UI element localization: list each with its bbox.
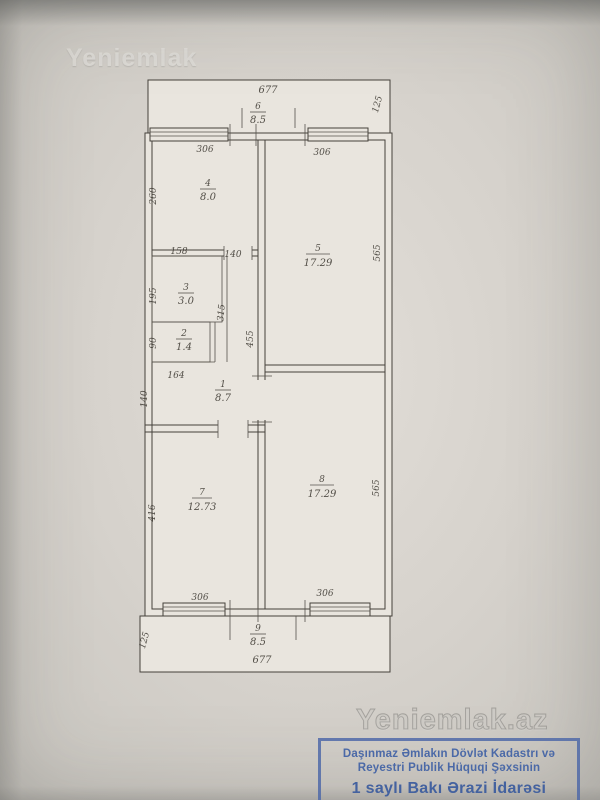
room-number-r3: 3 xyxy=(183,283,189,293)
dim-wall-left: 140 xyxy=(140,390,150,407)
dim-r8-width: 306 xyxy=(316,589,333,599)
dim-door-top: 140 xyxy=(224,250,241,260)
room-area-balcony-bottom: 8.5 xyxy=(250,637,266,648)
dim-r4-width: 306 xyxy=(196,145,213,155)
dim-r7-height: 416 xyxy=(148,504,158,522)
room-area-r8: 17.29 xyxy=(308,489,337,500)
dim-r3-width: 158 xyxy=(170,247,187,257)
watermark-top: Yeniemlak xyxy=(66,44,197,73)
photo-of-floorplan: Yeniemlak 677 xyxy=(0,0,600,800)
cadastre-stamp: Daşınmaz Əmlakın Dövlət Kadastrı və Reye… xyxy=(318,738,580,800)
room-area-r3: 3.0 xyxy=(178,296,195,307)
room-area-r1: 8.7 xyxy=(215,393,232,404)
dim-bottom-width: 677 xyxy=(252,655,272,666)
dim-r3-height: 195 xyxy=(149,287,159,304)
room-number-r2: 2 xyxy=(180,329,187,339)
room-number-balcony-bottom: 9 xyxy=(255,624,261,634)
stamp-line1: Daşınmaz Əmlakın Dövlət Kadastrı və xyxy=(325,747,573,761)
dim-r2-width: 164 xyxy=(167,371,184,381)
room-number-r7: 7 xyxy=(199,488,205,498)
room-number-r1: 1 xyxy=(220,380,226,390)
dim-corridor-right: 455 xyxy=(246,330,256,348)
window-top-right xyxy=(308,128,368,141)
window-top-left xyxy=(150,128,228,141)
dim-r5-height: 565 xyxy=(373,244,383,261)
room-number-balcony-top: 6 xyxy=(255,102,261,112)
watermark-bottom: Yeniemlak.az xyxy=(356,704,549,737)
room-area-r5: 17.29 xyxy=(304,258,333,269)
floorplan-drawing: 677 6 8.5 125 306 260 4 8.0 306 565 5 17… xyxy=(0,0,600,800)
window-bottom-left xyxy=(163,603,225,616)
dim-r3-right: 315 xyxy=(216,304,227,322)
dim-r8-height: 565 xyxy=(372,479,382,496)
room-area-r4: 8.0 xyxy=(200,192,217,203)
dim-r5-width: 306 xyxy=(313,148,330,158)
dim-r7-width: 306 xyxy=(191,593,208,603)
room-number-r8: 8 xyxy=(319,475,325,485)
room-area-balcony-top: 8.5 xyxy=(250,115,266,126)
room-area-r7: 12.73 xyxy=(188,502,217,513)
stamp-line2: Reyestri Publik Hüquqi Şəxsinin xyxy=(325,761,573,775)
room-number-r5: 5 xyxy=(315,244,321,254)
window-bottom-right xyxy=(310,603,370,616)
room-number-r4: 4 xyxy=(204,179,211,189)
dim-r2-height: 90 xyxy=(149,337,159,349)
room-area-r2: 1.4 xyxy=(176,342,192,353)
dim-top-width: 677 xyxy=(258,85,278,96)
stamp-line3: 1 saylı Bakı Ərazi İdarəsi xyxy=(325,780,573,798)
dim-r4-height: 260 xyxy=(149,187,159,205)
